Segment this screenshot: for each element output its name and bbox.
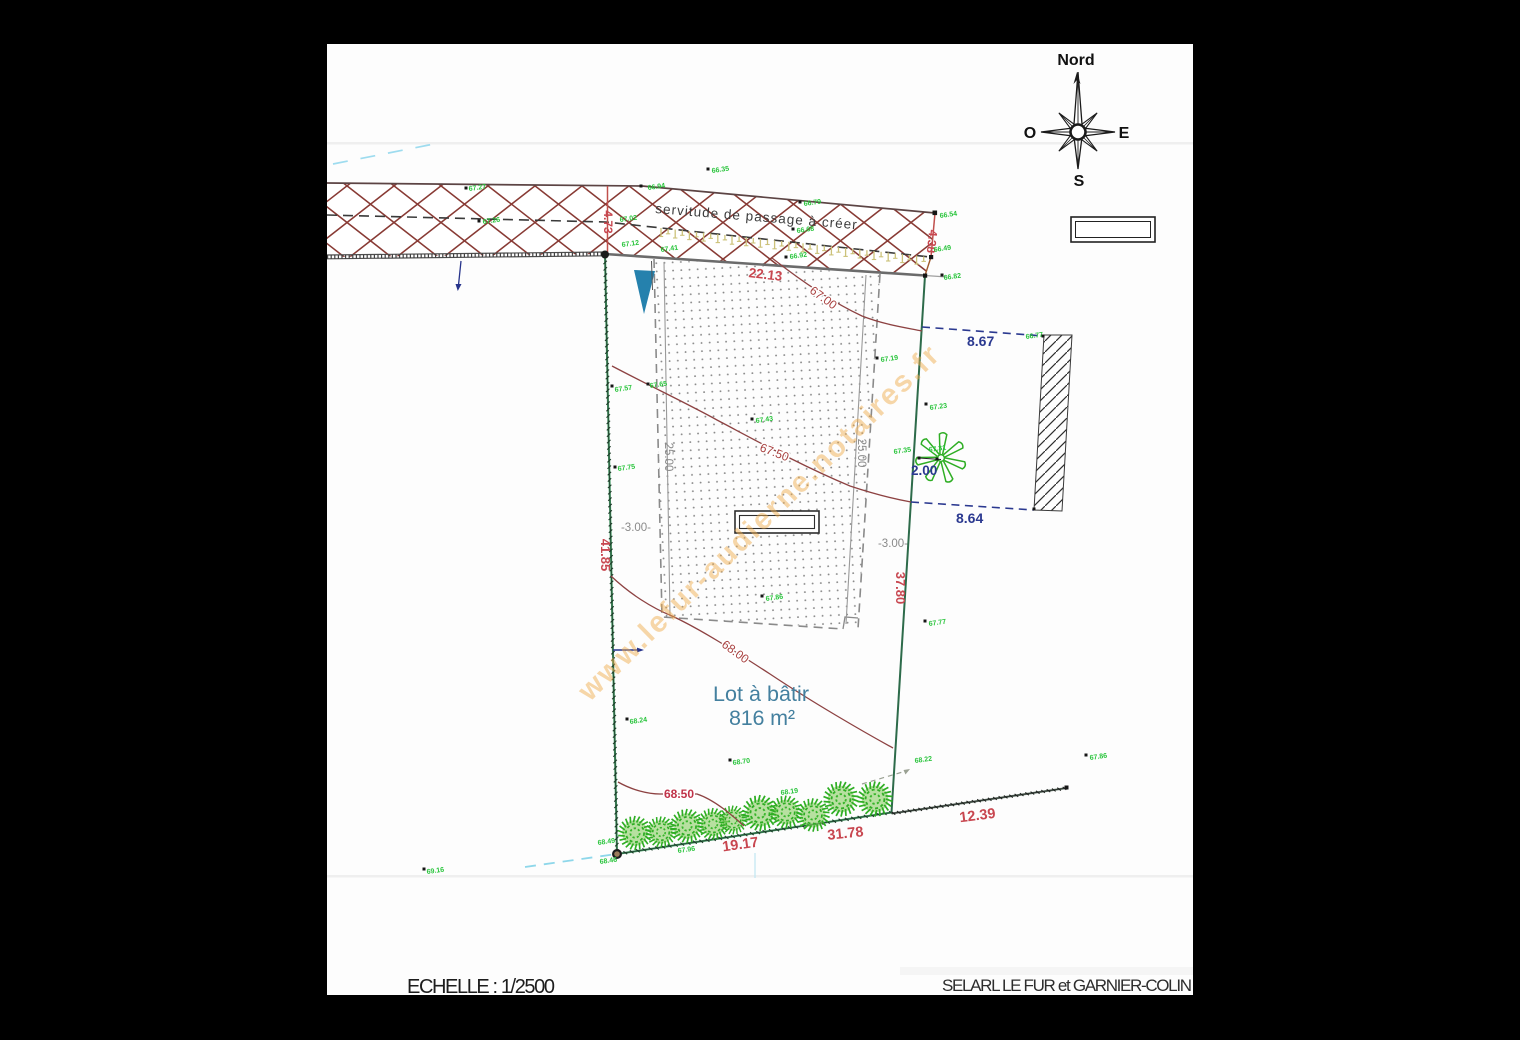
svg-text:41.85: 41.85 — [598, 539, 613, 572]
svg-text:37.80: 37.80 — [893, 572, 908, 605]
svg-text:816 m²: 816 m² — [729, 706, 795, 730]
svg-text:4.73: 4.73 — [601, 210, 615, 234]
svg-text:Lot à bâtir: Lot à bâtir — [713, 682, 809, 706]
svg-text:25.00: 25.00 — [662, 443, 674, 472]
svg-text:S: S — [1074, 173, 1085, 190]
svg-text:E: E — [1119, 125, 1130, 142]
svg-text:O: O — [1024, 125, 1036, 142]
svg-text:2.00: 2.00 — [911, 463, 937, 478]
svg-text:-3.00-: -3.00- — [621, 522, 651, 534]
svg-text:-3.00-: -3.00- — [878, 538, 908, 550]
svg-text:68.50: 68.50 — [664, 787, 694, 801]
svg-text:SELARL LE FUR et GARNIER-COLIN: SELARL LE FUR et GARNIER-COLIN — [942, 976, 1192, 995]
svg-text:ECHELLE : 1/2500: ECHELLE : 1/2500 — [407, 976, 555, 998]
svg-text:Nord: Nord — [1057, 52, 1094, 69]
svg-text:8.64: 8.64 — [956, 510, 983, 526]
svg-text:8.67: 8.67 — [967, 333, 994, 349]
